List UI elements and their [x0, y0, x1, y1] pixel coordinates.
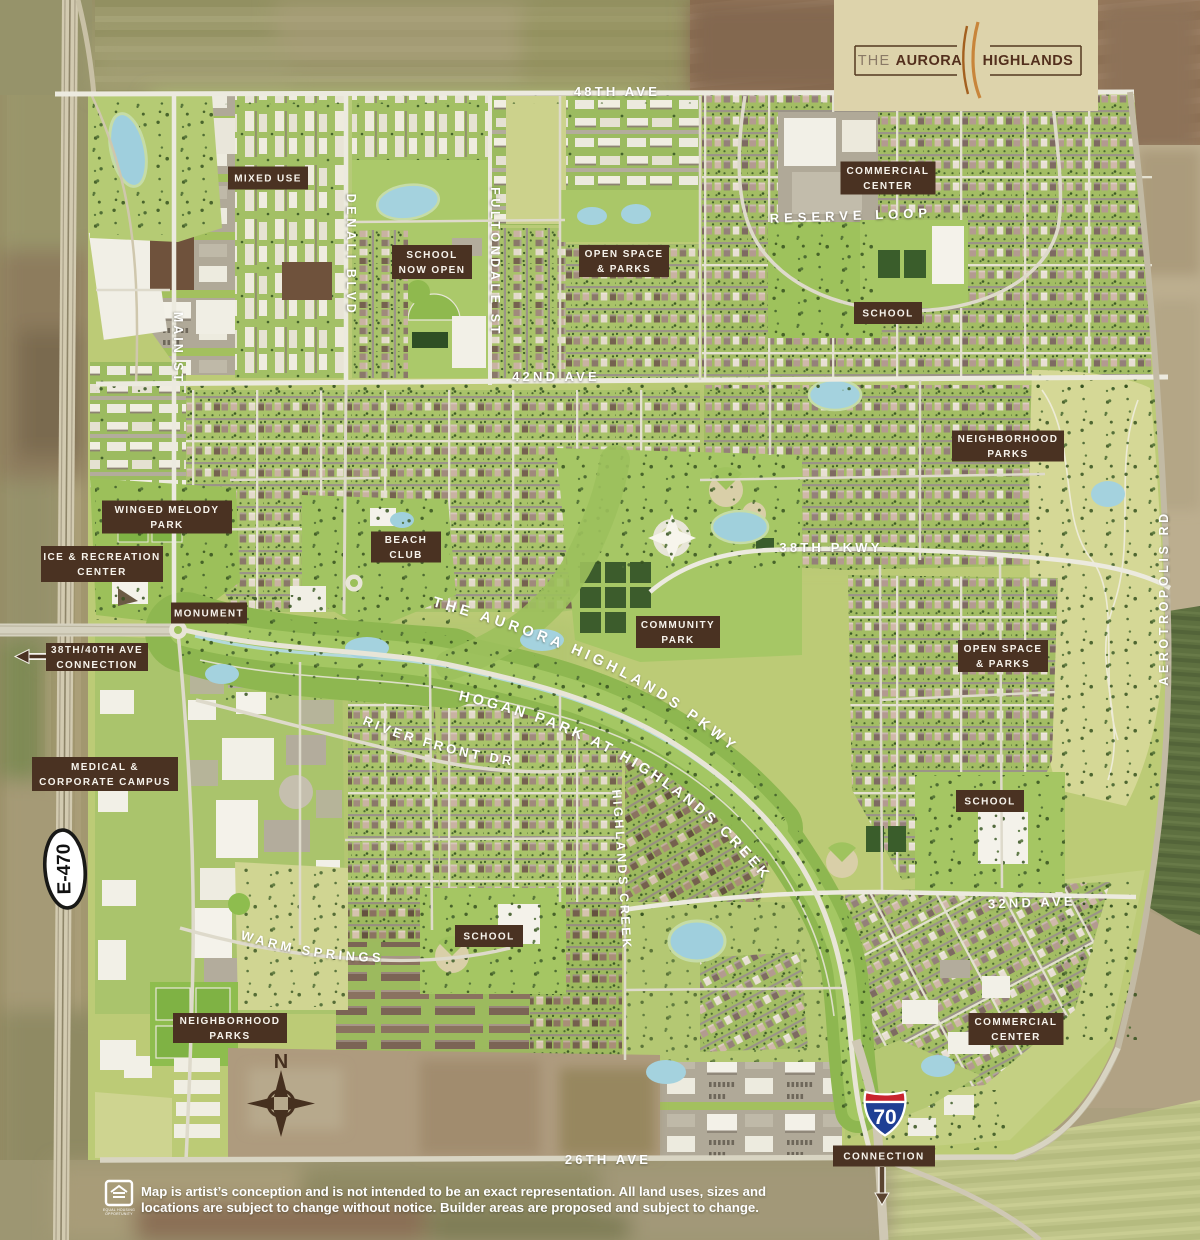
svg-text:COMMUNITY: COMMUNITY [641, 620, 715, 631]
svg-text:CENTER: CENTER [991, 1032, 1041, 1043]
svg-text:PARK: PARK [150, 520, 183, 531]
svg-text:PARKS: PARKS [209, 1031, 250, 1042]
svg-text:CENTER: CENTER [863, 181, 913, 192]
svg-text:COMMERCIAL: COMMERCIAL [975, 1017, 1058, 1028]
svg-text:CLUB: CLUB [389, 550, 422, 561]
svg-text:70: 70 [873, 1106, 896, 1129]
svg-text:38TH PKWY: 38TH PKWY [779, 540, 882, 555]
svg-text:DENALI BLVD: DENALI BLVD [344, 194, 358, 317]
svg-text:AEROTROPOLIS RD: AEROTROPOLIS RD [1157, 510, 1171, 686]
svg-text:BEACH: BEACH [385, 535, 428, 546]
svg-text:42ND AVE: 42ND AVE [512, 369, 600, 384]
svg-text:N: N [274, 1051, 288, 1073]
svg-text:CENTER: CENTER [77, 567, 127, 578]
svg-text:THE AURORA: THE AURORA [858, 53, 963, 69]
svg-text:COMMERCIAL: COMMERCIAL [847, 166, 930, 177]
svg-text:26TH AVE: 26TH AVE [565, 1152, 651, 1167]
svg-text:NOW OPEN: NOW OPEN [399, 265, 466, 276]
svg-text:HIGHLANDS: HIGHLANDS [983, 53, 1074, 69]
svg-text:PARKS: PARKS [987, 449, 1028, 460]
svg-text:32ND AVE: 32ND AVE [988, 893, 1076, 911]
svg-text:& PARKS: & PARKS [597, 264, 651, 275]
svg-text:SCHOOL: SCHOOL [406, 250, 457, 261]
svg-text:48TH AVE: 48TH AVE [574, 84, 660, 99]
svg-text:MAIN ST: MAIN ST [171, 312, 185, 384]
svg-text:locations are subject to chang: locations are subject to change without … [141, 1200, 759, 1215]
svg-text:SCHOOL: SCHOOL [463, 932, 514, 943]
svg-text:& PARKS: & PARKS [976, 659, 1030, 670]
svg-text:CONNECTION: CONNECTION [843, 1152, 924, 1163]
svg-text:FULTONDALE ST: FULTONDALE ST [488, 187, 502, 337]
svg-text:PARK: PARK [661, 635, 694, 646]
svg-text:MONUMENT: MONUMENT [174, 609, 244, 620]
svg-text:ICE & RECREATION: ICE & RECREATION [43, 552, 160, 563]
svg-text:SCHOOL: SCHOOL [964, 797, 1015, 808]
svg-text:CONNECTION: CONNECTION [56, 660, 137, 671]
svg-text:OPPORTUNITY: OPPORTUNITY [105, 1212, 133, 1216]
svg-text:CORPORATE CAMPUS: CORPORATE CAMPUS [39, 777, 171, 788]
svg-text:OPEN SPACE: OPEN SPACE [964, 644, 1043, 655]
svg-text:SCHOOL: SCHOOL [862, 309, 913, 320]
svg-text:E-470: E-470 [54, 843, 76, 894]
svg-text:Map is artist’s conception and: Map is artist’s conception and is not in… [141, 1184, 766, 1199]
svg-text:MEDICAL &: MEDICAL & [71, 762, 139, 773]
svg-text:MIXED USE: MIXED USE [234, 174, 302, 185]
svg-text:NEIGHBORHOOD: NEIGHBORHOOD [958, 434, 1059, 445]
svg-text:OPEN SPACE: OPEN SPACE [585, 249, 664, 260]
svg-text:NEIGHBORHOOD: NEIGHBORHOOD [180, 1016, 281, 1027]
svg-text:38TH/40TH AVE: 38TH/40TH AVE [51, 645, 143, 656]
svg-text:WINGED MELODY: WINGED MELODY [115, 505, 220, 516]
